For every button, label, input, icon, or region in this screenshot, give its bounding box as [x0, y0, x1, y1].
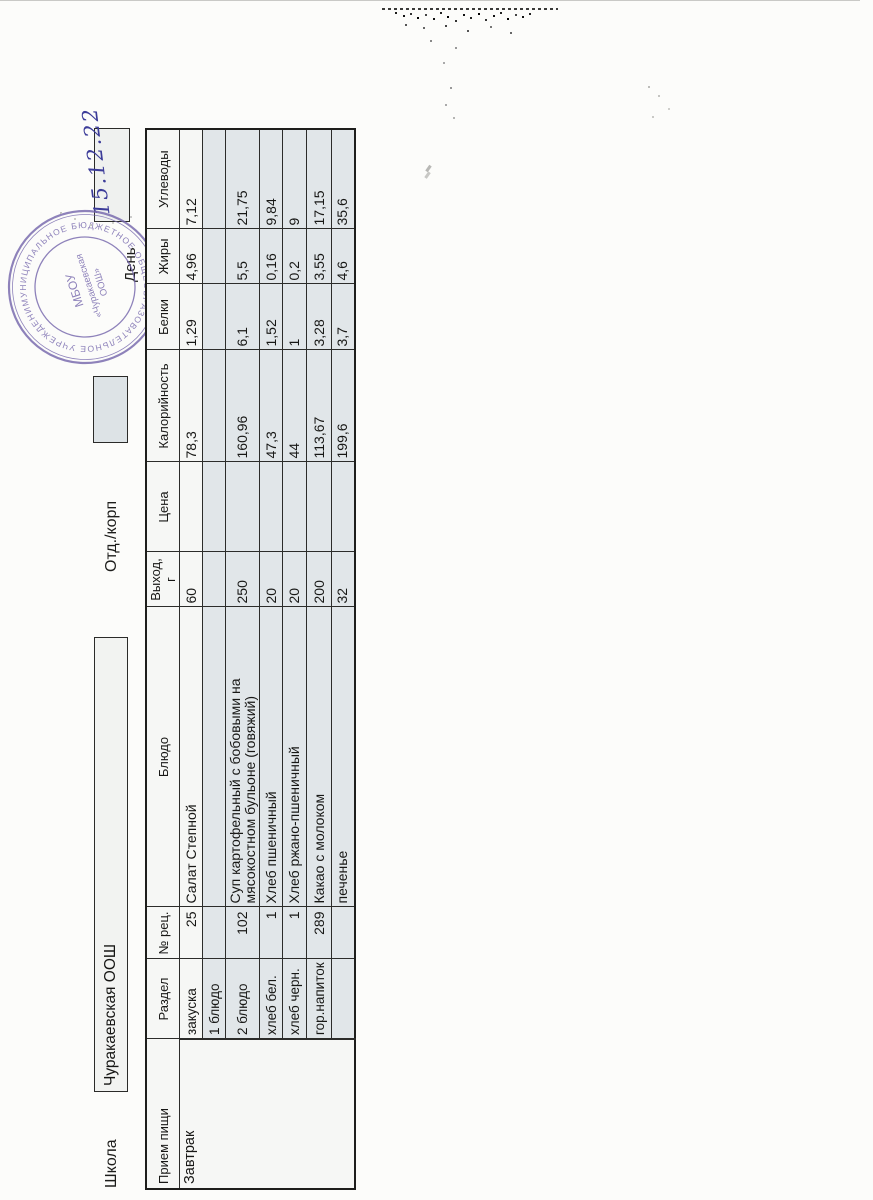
cell-output: 250: [226, 552, 260, 607]
cell-protein: 6,1: [226, 284, 260, 350]
cell-calories: [203, 350, 226, 462]
cell-protein: 1: [283, 284, 307, 350]
cell-dish: Какао с молоком: [307, 607, 332, 907]
table-row: 2 блюдо 102 Суп картофельный с бобовыми …: [226, 129, 260, 1189]
cell-razdel: [332, 959, 355, 1039]
scanned-page: Школа Чуракаевская ООШ Отд./корп День 15…: [0, 0, 873, 1200]
cell-protein: 3,28: [307, 284, 332, 350]
school-name: Чуракаевская ООШ: [102, 944, 119, 1086]
cell-dish: печенье: [332, 607, 355, 907]
col-header-protein: Белки: [146, 284, 180, 350]
rotated-document: Школа Чуракаевская ООШ Отд./корп День 15…: [0, 0, 873, 1200]
cell-dish: Хлеб пшеничный: [260, 607, 283, 907]
cell-fat: 5,5: [226, 229, 260, 284]
cell-output: [203, 552, 226, 607]
scan-artifact-smudge: [60, 212, 62, 214]
cell-carbs: 9: [283, 129, 307, 229]
table-row: печенье 32 199,6 3,7 4,6 35,6: [332, 129, 355, 1189]
cell-fat: 3,55: [307, 229, 332, 284]
cell-dish: Салат Степной: [180, 607, 203, 907]
cell-price: [283, 462, 307, 552]
table-row: хлеб бел. 1 Хлеб пшеничный 20 47,3 1,52 …: [260, 129, 283, 1189]
cell-carbs: [203, 129, 226, 229]
menu-table: Прием пищи Раздел № рец. Блюдо Выход, г …: [145, 128, 356, 1190]
col-header-price: Цена: [146, 462, 180, 552]
cell-output: 60: [180, 552, 203, 607]
cell-recipe: [332, 907, 355, 959]
cell-price: [180, 462, 203, 552]
cell-fat: 0,2: [283, 229, 307, 284]
cell-price: [203, 462, 226, 552]
scan-artifact-dashes: [382, 8, 558, 10]
cell-fat: 0,16: [260, 229, 283, 284]
col-header-meal: Прием пищи: [146, 1039, 180, 1189]
col-header-recipe: № рец.: [146, 907, 180, 959]
cell-calories: 44: [283, 350, 307, 462]
cell-carbs: 35,6: [332, 129, 355, 229]
cell-output: 200: [307, 552, 332, 607]
cell-recipe: 289: [307, 907, 332, 959]
school-name-box: Чуракаевская ООШ: [94, 637, 128, 1092]
dept-label: Отд./корп: [103, 501, 121, 572]
cell-output: 20: [260, 552, 283, 607]
cell-price: [226, 462, 260, 552]
table-row: 1 блюдо: [203, 129, 226, 1189]
col-header-carbs: Углеводы: [146, 129, 180, 229]
scan-artifact-line: [0, 0, 860, 1]
dept-empty-box: [93, 376, 128, 443]
cell-dish: [203, 607, 226, 907]
cell-carbs: 7,12: [180, 129, 203, 229]
cell-recipe: 1: [260, 907, 283, 959]
cell-fat: [203, 229, 226, 284]
cell-protein: [203, 284, 226, 350]
cell-output: 32: [332, 552, 355, 607]
header-row: Прием пищи Раздел № рец. Блюдо Выход, г …: [146, 129, 180, 1189]
cell-calories: 160,96: [226, 350, 260, 462]
cell-dish: Хлеб ржано-пшеничный: [283, 607, 307, 907]
table-row: Завтрак закуска 25 Салат Степной 60 78,3…: [180, 129, 203, 1189]
cell-recipe: 1: [283, 907, 307, 959]
col-header-dish: Блюдо: [146, 607, 180, 907]
cell-carbs: 21,75: [226, 129, 260, 229]
cell-razdel: гор.напиток: [307, 959, 332, 1039]
cell-protein: 1,52: [260, 284, 283, 350]
cell-fat: 4,96: [180, 229, 203, 284]
col-header-calories: Калорийность: [146, 350, 180, 462]
scan-artifact-speckles: [395, 12, 397, 14]
meal-type-cell: Завтрак: [180, 1039, 355, 1189]
table-row: хлеб черн. 1 Хлеб ржано-пшеничный 20 44 …: [283, 129, 307, 1189]
cell-price: [332, 462, 355, 552]
cell-protein: 3,7: [332, 284, 355, 350]
cell-fat: 4,6: [332, 229, 355, 284]
cell-razdel: 2 блюдо: [226, 959, 260, 1039]
cell-razdel: хлеб бел.: [260, 959, 283, 1039]
cell-price: [307, 462, 332, 552]
scan-artifact-smudge: [648, 86, 650, 88]
cell-recipe: [203, 907, 226, 959]
cell-razdel: 1 блюдо: [203, 959, 226, 1039]
col-header-razdel: Раздел: [146, 959, 180, 1039]
cell-price: [260, 462, 283, 552]
cell-calories: 199,6: [332, 350, 355, 462]
cell-razdel: закуска: [180, 959, 203, 1039]
table-row: гор.напиток 289 Какао с молоком 200 113,…: [307, 129, 332, 1189]
col-header-fat: Жиры: [146, 229, 180, 284]
cell-carbs: 17,15: [307, 129, 332, 229]
col-header-output: Выход, г: [146, 552, 180, 607]
cell-calories: 78,3: [180, 350, 203, 462]
cell-output: 20: [283, 552, 307, 607]
school-label: Школа: [103, 1139, 121, 1188]
cell-razdel: хлеб черн.: [283, 959, 307, 1039]
cell-calories: 113,67: [307, 350, 332, 462]
cell-calories: 47,3: [260, 350, 283, 462]
cell-recipe: 25: [180, 907, 203, 959]
cell-carbs: 9,84: [260, 129, 283, 229]
cell-recipe: 102: [226, 907, 260, 959]
cell-protein: 1,29: [180, 284, 203, 350]
cell-dish: Суп картофельный с бобовыми на мясокостн…: [226, 607, 260, 907]
